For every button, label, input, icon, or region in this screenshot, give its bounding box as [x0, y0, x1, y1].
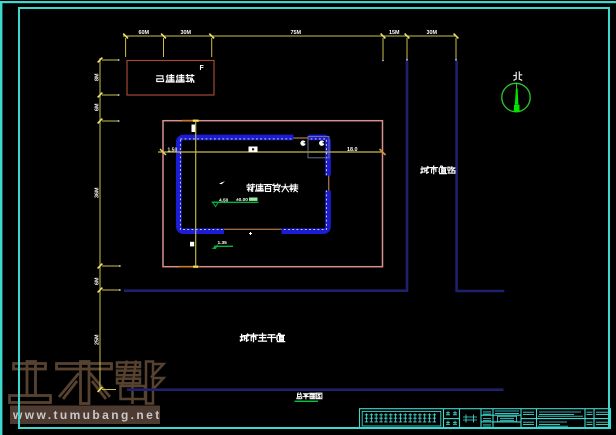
svg-text:60M: 60M — [139, 30, 150, 36]
svg-text:18.0: 18.0 — [347, 147, 358, 153]
svg-text:8M: 8M — [95, 73, 101, 81]
svg-text:30M: 30M — [427, 30, 438, 36]
svg-text:25M: 25M — [95, 334, 101, 345]
svg-text:6M: 6M — [95, 277, 101, 285]
svg-text:30M: 30M — [181, 30, 192, 36]
svg-text:75M: 75M — [291, 30, 302, 36]
svg-text:1.50: 1.50 — [168, 148, 178, 154]
svg-text:6M: 6M — [95, 103, 101, 111]
svg-text:15M: 15M — [389, 30, 400, 36]
svg-text:36M: 36M — [95, 187, 101, 198]
svg-text:F: F — [200, 65, 205, 72]
svg-text:www.tumubang.net: www.tumubang.net — [12, 408, 162, 422]
svg-text:1.35: 1.35 — [218, 240, 228, 246]
svg-text:4.50: 4.50 — [219, 197, 229, 203]
svg-text:±0.00: ±0.00 — [236, 197, 248, 203]
